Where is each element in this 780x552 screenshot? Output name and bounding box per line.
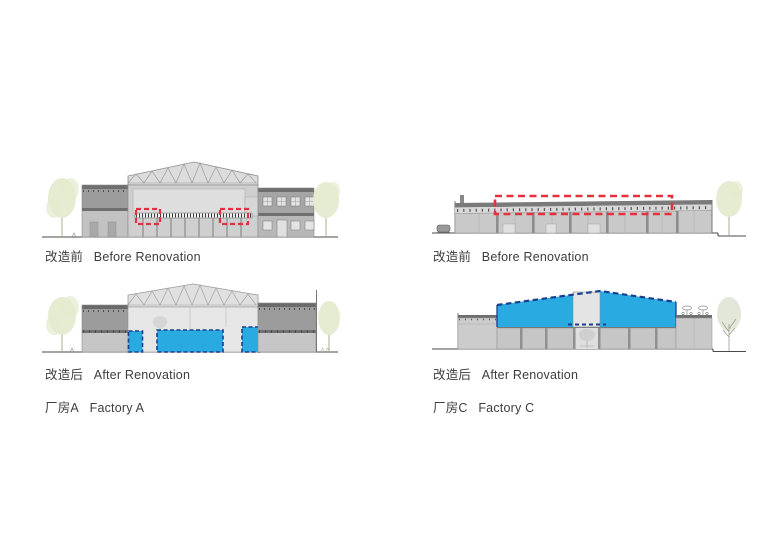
hall-section — [128, 185, 258, 237]
label-en: After Renovation — [482, 368, 578, 382]
label-cn: 改造后 — [45, 368, 83, 382]
label-en: Before Renovation — [482, 250, 589, 264]
bin-sketch — [437, 225, 450, 233]
left-wing-section — [82, 185, 128, 237]
figure-sketch — [72, 233, 76, 237]
tree-icon — [716, 181, 743, 235]
left-wall-section — [458, 313, 497, 349]
label-cn: 厂房A — [45, 401, 79, 415]
label-cn: 改造前 — [45, 250, 83, 264]
door — [277, 220, 287, 237]
factory-c-before-drawing — [428, 168, 748, 238]
shed-section — [455, 195, 712, 233]
label-cn: 厂房C — [433, 401, 468, 415]
renovation-volume-blue — [497, 291, 676, 327]
label-en: After Renovation — [94, 368, 190, 382]
tree-icon — [313, 182, 340, 236]
tree-icon — [46, 296, 79, 351]
interior-tree-sketch — [153, 316, 167, 328]
central-tower — [573, 292, 600, 327]
right-wing-section — [258, 303, 316, 352]
label-factory-c-before: 改造前 Before Renovation — [433, 246, 589, 265]
left-wing-section — [82, 305, 128, 352]
label-factory-c-after: 改造后 After Renovation — [433, 364, 578, 383]
label-factory-c-name: 厂房C Factory C — [433, 397, 534, 416]
label-en: Before Renovation — [94, 250, 201, 264]
main-wall-section — [497, 325, 676, 349]
label-en: Factory C — [478, 401, 534, 415]
renovation-volume-blue — [157, 330, 223, 352]
tree-icon — [318, 301, 340, 351]
tree-icon — [46, 178, 79, 236]
figure-sketch — [70, 348, 74, 352]
factory-a-before-drawing — [40, 150, 340, 242]
interior-tree-sketch — [579, 329, 595, 341]
truss-roof — [128, 162, 258, 185]
label-en: Factory A — [90, 401, 145, 415]
rooftop-furniture-sketch — [682, 306, 708, 315]
label-factory-a-after: 改造后 After Renovation — [45, 364, 190, 383]
label-cn: 改造后 — [433, 368, 471, 382]
tree-icon — [717, 297, 741, 351]
label-factory-a-before: 改造前 Before Renovation — [45, 246, 201, 265]
truss-roof — [128, 284, 258, 307]
factory-a-after-drawing — [40, 270, 340, 362]
grass-sketch — [321, 348, 329, 351]
label-factory-a-name: 厂房A Factory A — [45, 397, 144, 416]
renovation-volume-blue — [129, 331, 143, 352]
renovation-volume-blue — [242, 327, 259, 352]
drawing-sheet: 改造前 Before Renovation 改造后 After Renovati… — [0, 0, 780, 552]
label-cn: 改造前 — [433, 250, 471, 264]
right-wing-section — [258, 188, 314, 237]
factory-c-after-drawing — [428, 272, 748, 354]
right-wall-section — [676, 306, 712, 349]
